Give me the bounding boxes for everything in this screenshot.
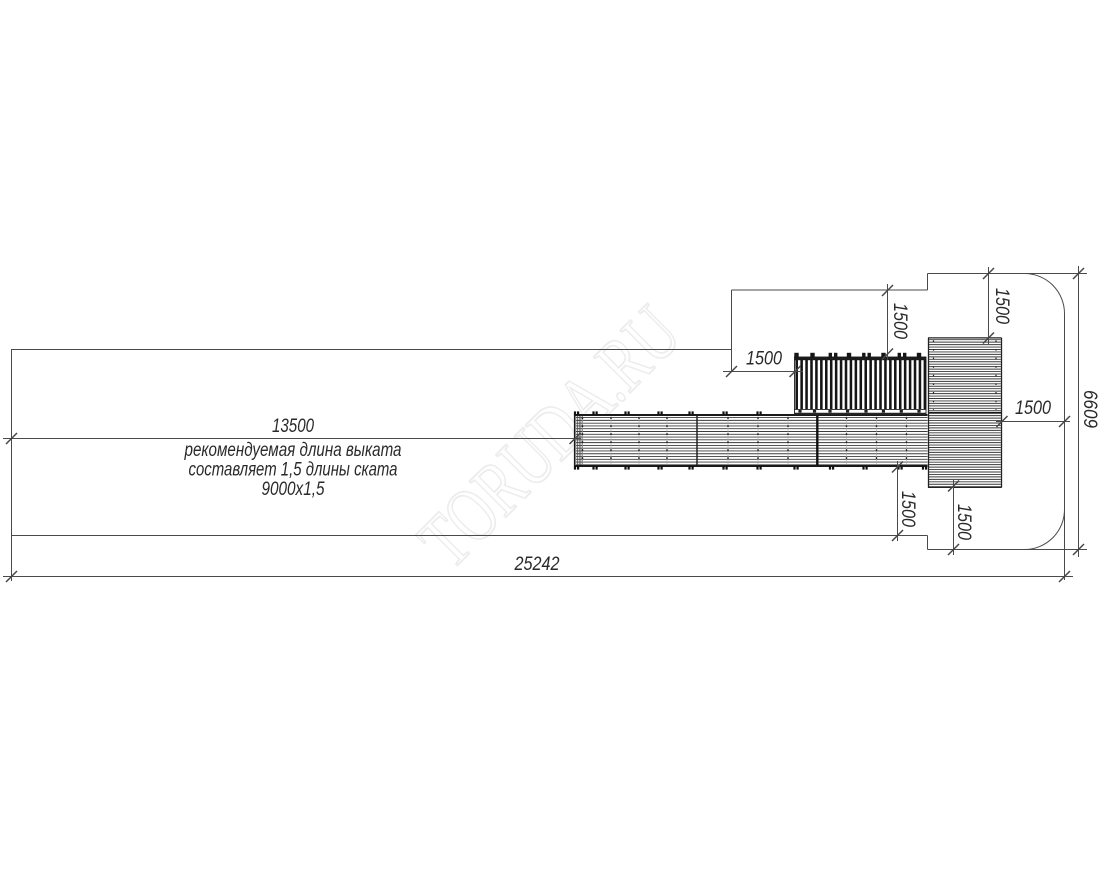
svg-text:1500: 1500	[897, 491, 918, 527]
svg-text:1500: 1500	[1015, 398, 1051, 419]
svg-text:13500: 13500	[272, 416, 314, 437]
svg-text:составляет 1,5 длины ската: составляет 1,5 длины ската	[189, 460, 398, 481]
svg-text:1500: 1500	[746, 349, 782, 370]
svg-text:6609: 6609	[1079, 390, 1100, 428]
svg-text:9000х1,5: 9000х1,5	[262, 479, 325, 500]
svg-text:1500: 1500	[889, 303, 910, 339]
svg-text:25242: 25242	[514, 554, 560, 575]
svg-text:1500: 1500	[953, 504, 974, 540]
svg-text:рекомендуемая длина выката: рекомендуемая длина выката	[184, 440, 402, 461]
svg-text:1500: 1500	[991, 288, 1012, 324]
